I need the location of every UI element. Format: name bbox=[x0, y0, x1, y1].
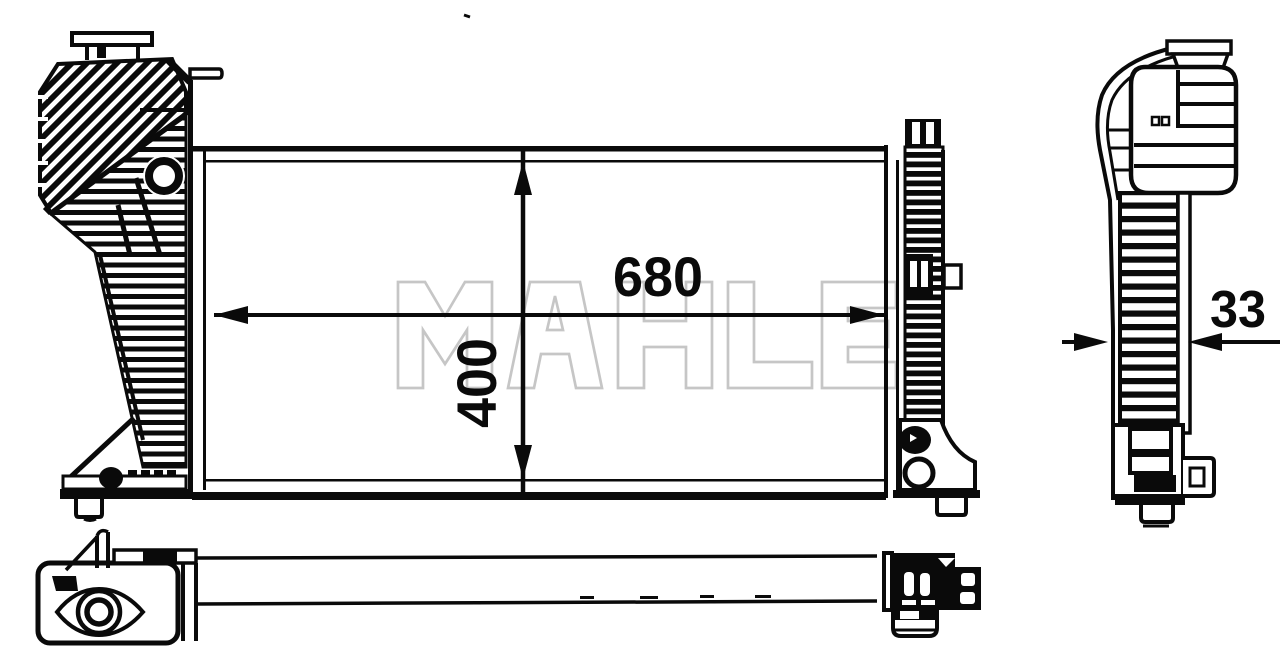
svg-text:400: 400 bbox=[445, 338, 508, 428]
svg-text:33: 33 bbox=[1210, 281, 1266, 339]
svg-text:680: 680 bbox=[613, 245, 703, 308]
